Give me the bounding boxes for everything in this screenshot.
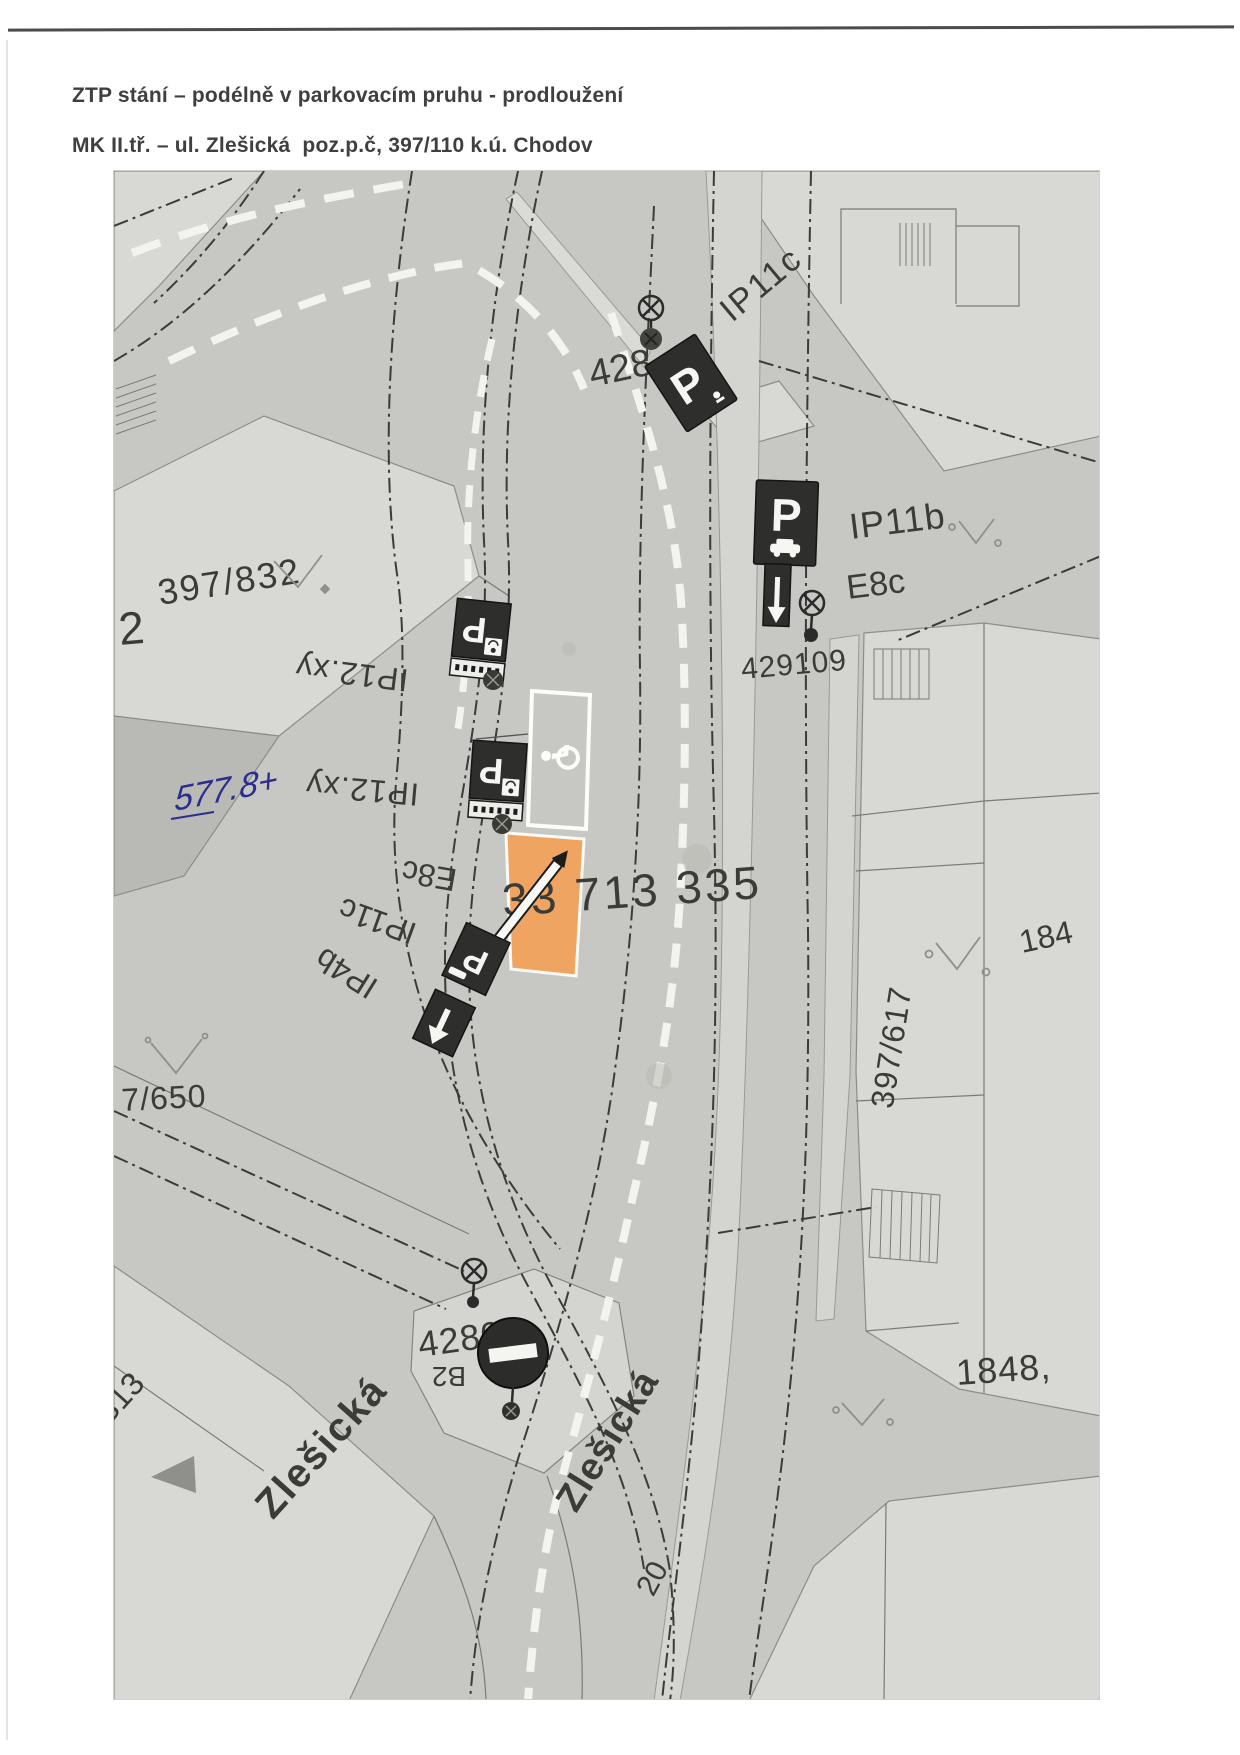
document-title: ZTP stání – podélně v parkovacím pruhu -… bbox=[72, 84, 623, 108]
scan-top-line bbox=[8, 25, 1234, 31]
sign-p-glyph: P bbox=[478, 750, 505, 793]
scan-edge-shadow bbox=[6, 40, 8, 1740]
cadastral-map-canvas: IP11c 428 IP11b E8c 429109 397/832 2 IP1… bbox=[114, 171, 1100, 1700]
arrow-plate-icon bbox=[763, 564, 791, 627]
label-1848: 1848, bbox=[955, 1345, 1053, 1393]
traffic-sign-ip12-upper: P bbox=[449, 598, 511, 690]
sign-p-glyph: P bbox=[460, 608, 488, 651]
document-subtitle: MK II.tř. – ul. Zlešická poz.p.č, 397/11… bbox=[72, 134, 593, 158]
label-e8c-right: E8c bbox=[844, 562, 907, 607]
situation-map: IP11c 428 IP11b E8c 429109 397/832 2 IP1… bbox=[113, 170, 1100, 1700]
label-2: 2 bbox=[116, 601, 146, 655]
sign-p-glyph: P bbox=[770, 488, 802, 541]
scanned-document-page: ZTP stání – podélně v parkovacím pruhu -… bbox=[0, 0, 1240, 1755]
label-7-650: 7/650 bbox=[120, 1078, 207, 1118]
label-b2: B2 bbox=[432, 1361, 466, 1392]
